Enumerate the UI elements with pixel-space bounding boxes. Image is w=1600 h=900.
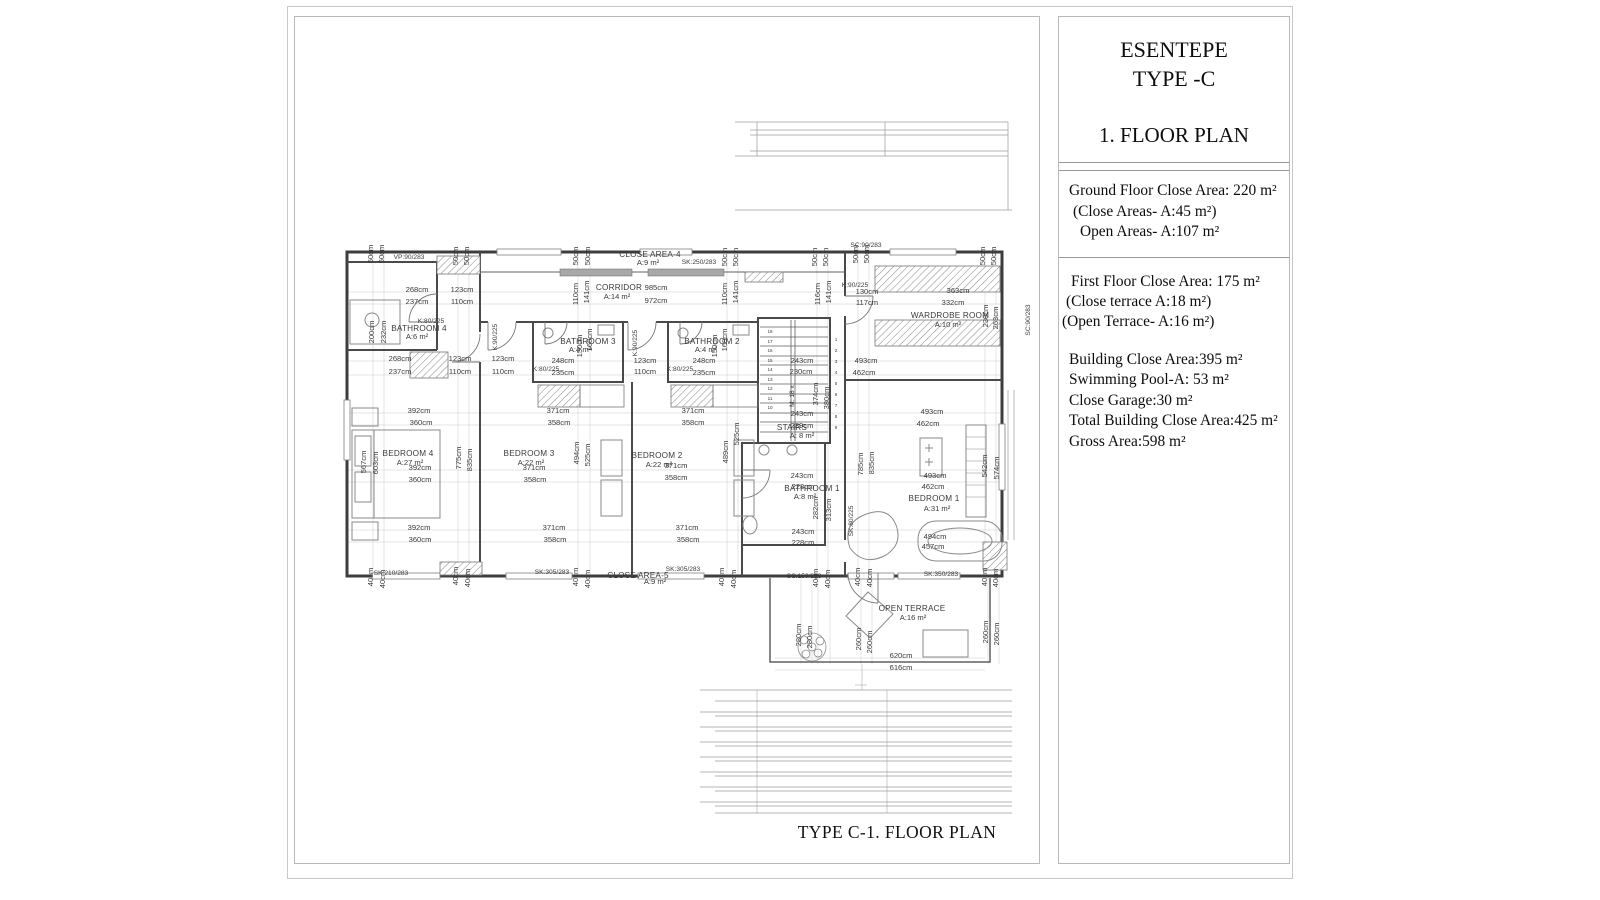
- project-title: ESENTEPE TYPE -C: [1059, 35, 1289, 93]
- divider-double: [1059, 162, 1289, 171]
- panel-line: First Floor Close Area: 175 m²: [1059, 272, 1289, 292]
- panel-line: Building Close Area:395 m²: [1059, 350, 1289, 370]
- panel-line: (Open Terrace- A:16 m²): [1059, 312, 1289, 332]
- panel-line: (Close Areas- A:45 m²): [1059, 202, 1289, 222]
- ground-floor-areas: Ground Floor Close Area: 220 m²(Close Ar…: [1059, 181, 1289, 242]
- first-floor-areas: First Floor Close Area: 175 m²(Close ter…: [1059, 272, 1289, 333]
- plan-caption: TYPE C-1. FLOOR PLAN: [737, 822, 1057, 843]
- panel-line: Gross Area:598 m²: [1059, 432, 1289, 452]
- project-title-line2: TYPE -C: [1059, 64, 1289, 93]
- panel-line: Close Garage:30 m²: [1059, 391, 1289, 411]
- info-panel: ESENTEPE TYPE -C 1. FLOOR PLAN Ground Fl…: [1058, 16, 1290, 864]
- panel-line: (Close terrace A:18 m²): [1059, 292, 1289, 312]
- panel-line: Ground Floor Close Area: 220 m²: [1059, 181, 1289, 201]
- building-totals: Building Close Area:395 m²Swimming Pool-…: [1059, 350, 1289, 452]
- panel-line: Open Areas- A:107 m²: [1059, 222, 1289, 242]
- sheet-subtitle: 1. FLOOR PLAN: [1059, 123, 1289, 148]
- plan-area-frame: [294, 16, 1040, 864]
- project-title-line1: ESENTEPE: [1059, 35, 1289, 64]
- panel-line: Swimming Pool-A: 53 m²: [1059, 370, 1289, 390]
- divider: [1059, 257, 1289, 258]
- panel-line: Total Building Close Area:425 m²: [1059, 411, 1289, 431]
